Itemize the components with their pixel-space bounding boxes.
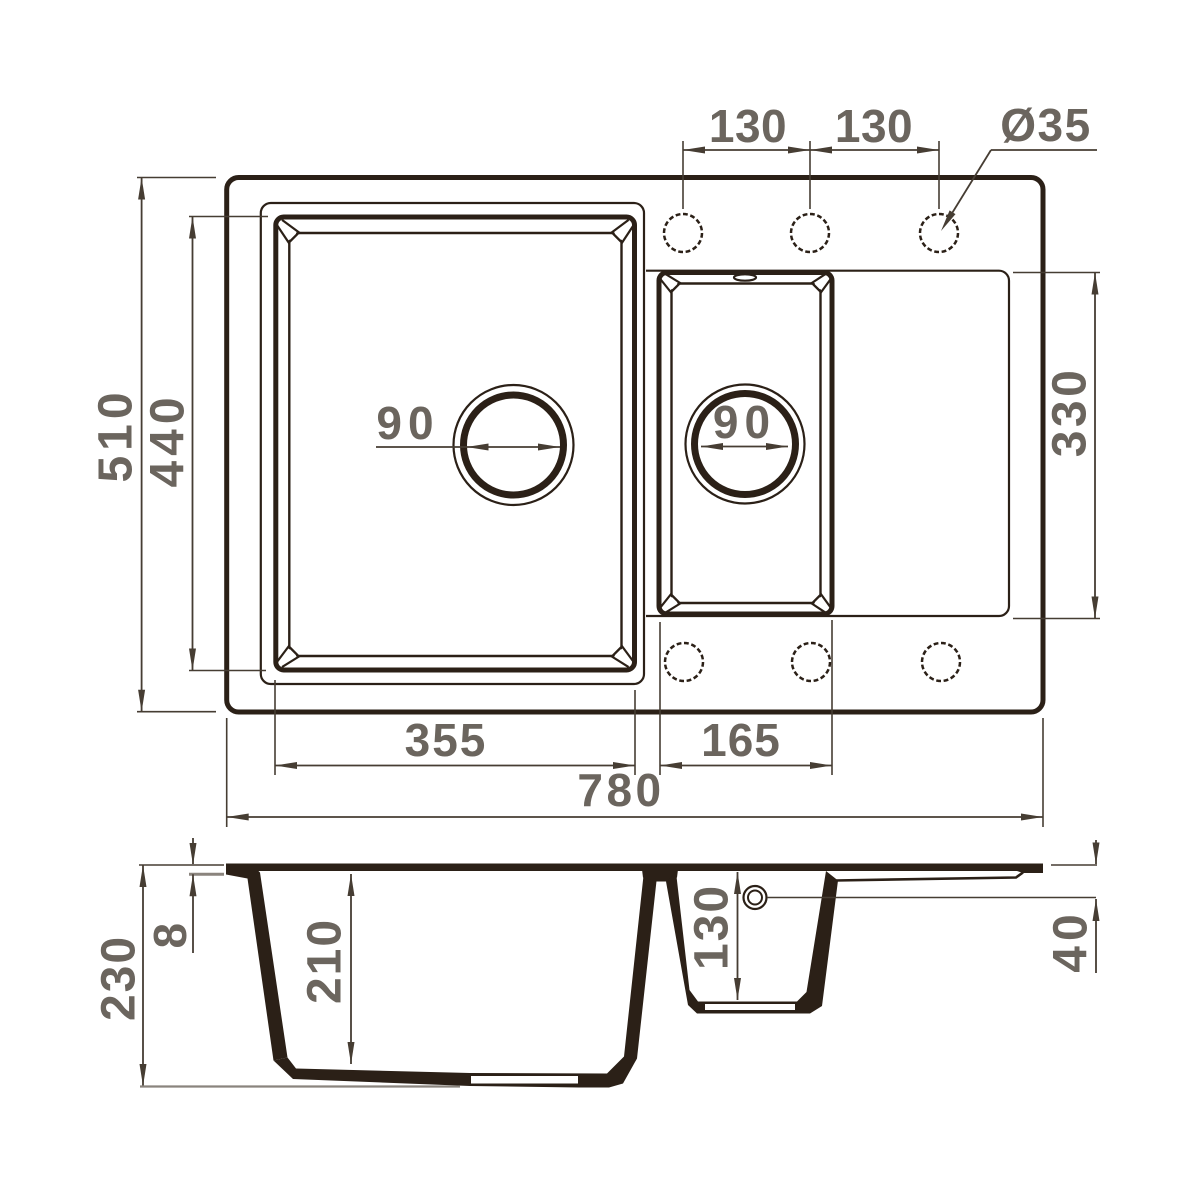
svg-text:130: 130 — [686, 884, 739, 970]
svg-text:780: 780 — [577, 764, 664, 816]
svg-text:90: 90 — [713, 396, 776, 448]
svg-text:355: 355 — [405, 714, 488, 766]
svg-text:230: 230 — [93, 935, 146, 1021]
svg-text:210: 210 — [299, 918, 352, 1004]
svg-text:440: 440 — [142, 392, 195, 487]
svg-text:90: 90 — [376, 397, 439, 449]
svg-text:40: 40 — [1045, 909, 1098, 972]
svg-text:130: 130 — [709, 100, 787, 152]
svg-text:8: 8 — [144, 919, 196, 948]
svg-text:130: 130 — [835, 100, 913, 152]
svg-text:165: 165 — [701, 714, 781, 766]
svg-text:330: 330 — [1044, 367, 1097, 458]
svg-text:510: 510 — [90, 387, 143, 482]
svg-text:Ø35: Ø35 — [1000, 99, 1091, 151]
